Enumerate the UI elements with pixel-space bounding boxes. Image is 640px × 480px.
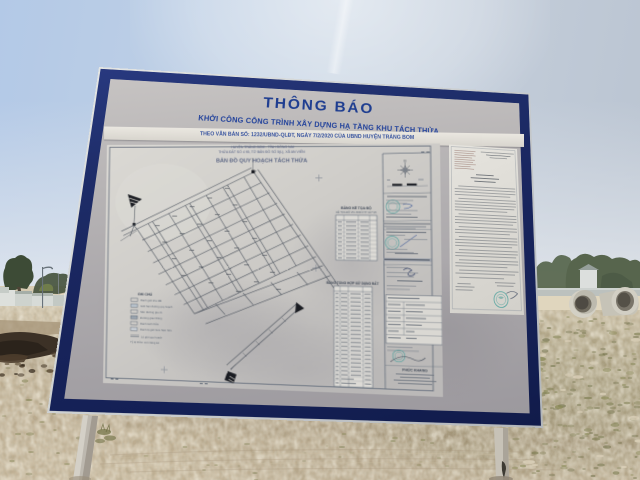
svg-text:Ranh tách thửa: Ranh tách thửa [140, 321, 159, 326]
svg-text:BẢN ĐỒ QUY HOẠCH TÁCH THỬA: BẢN ĐỒ QUY HOẠCH TÁCH THỬA [216, 157, 308, 165]
svg-text:THỬA ĐẤT SỐ 4 95, TỜ BẢN ĐỒ SỐ: THỬA ĐẤT SỐ 4 95, TỜ BẢN ĐỒ SỐ 5(L), XÃ … [219, 149, 306, 155]
svg-text:Lộ giới quy hoạch: Lộ giới quy hoạch [141, 335, 163, 340]
svg-text:GHI CHÚ: GHI CHÚ [138, 291, 153, 297]
svg-text:Nền đường gia cố: Nền đường gia cố [140, 310, 162, 315]
svg-text:PHÚC KHANG: PHÚC KHANG [402, 367, 428, 374]
svg-text:Đường giao thông: Đường giao thông [140, 316, 162, 321]
svg-text:BẢNG KÊ TỌA ĐỘ: BẢNG KÊ TỌA ĐỘ [341, 205, 372, 211]
svg-text:Ranh giới khu đất: Ranh giới khu đất [140, 298, 161, 303]
svg-text:B: B [404, 159, 406, 163]
svg-text:HỆ TỌA ĐỘ VN-2000 KTT 107°45': HỆ TỌA ĐỘ VN-2000 KTT 107°45' [336, 211, 378, 215]
svg-text:HUYỆN TRẢNG BOM - TỈNH ĐỒNG NA: HUYỆN TRẢNG BOM - TỈNH ĐỒNG NAI [231, 144, 294, 150]
